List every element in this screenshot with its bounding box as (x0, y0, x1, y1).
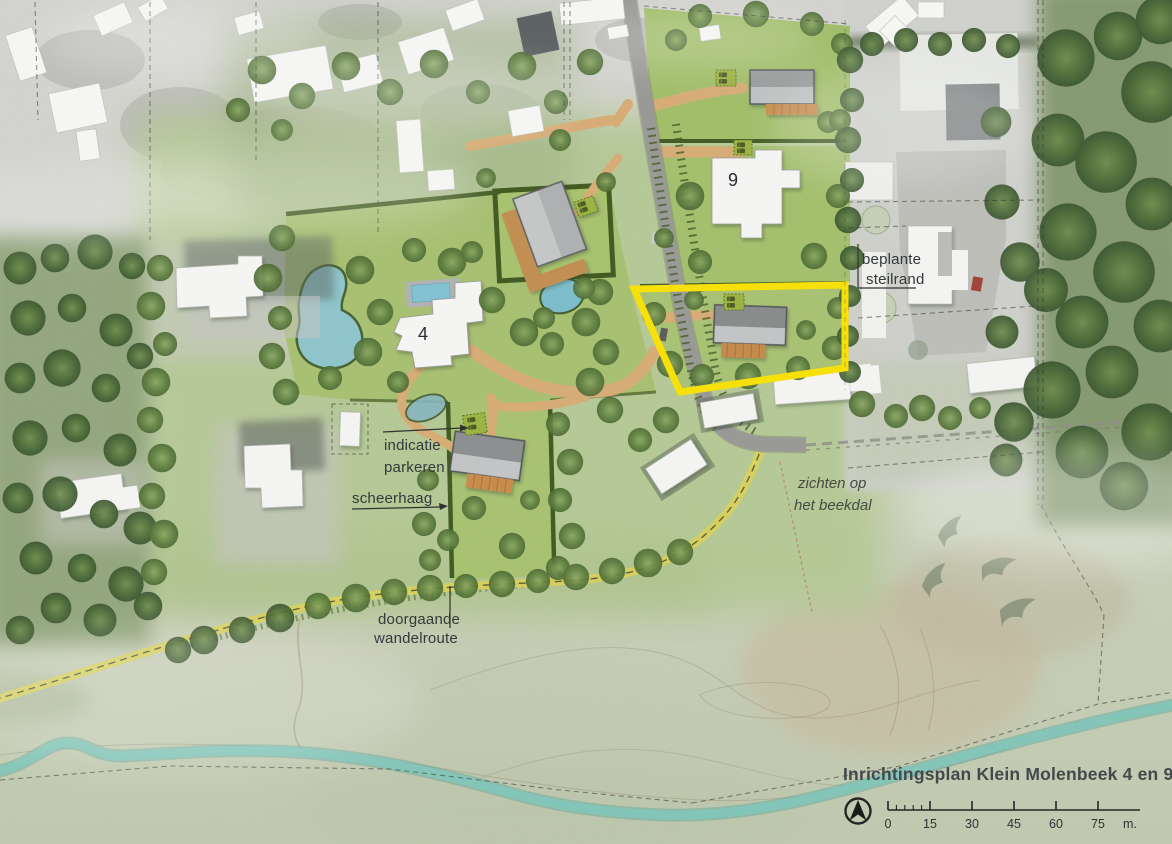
site-plan-canvas: 4 9 (0, 0, 1172, 844)
paper-grain-overlay (0, 0, 1172, 844)
site-plan-map: 4 9 (0, 0, 1172, 844)
